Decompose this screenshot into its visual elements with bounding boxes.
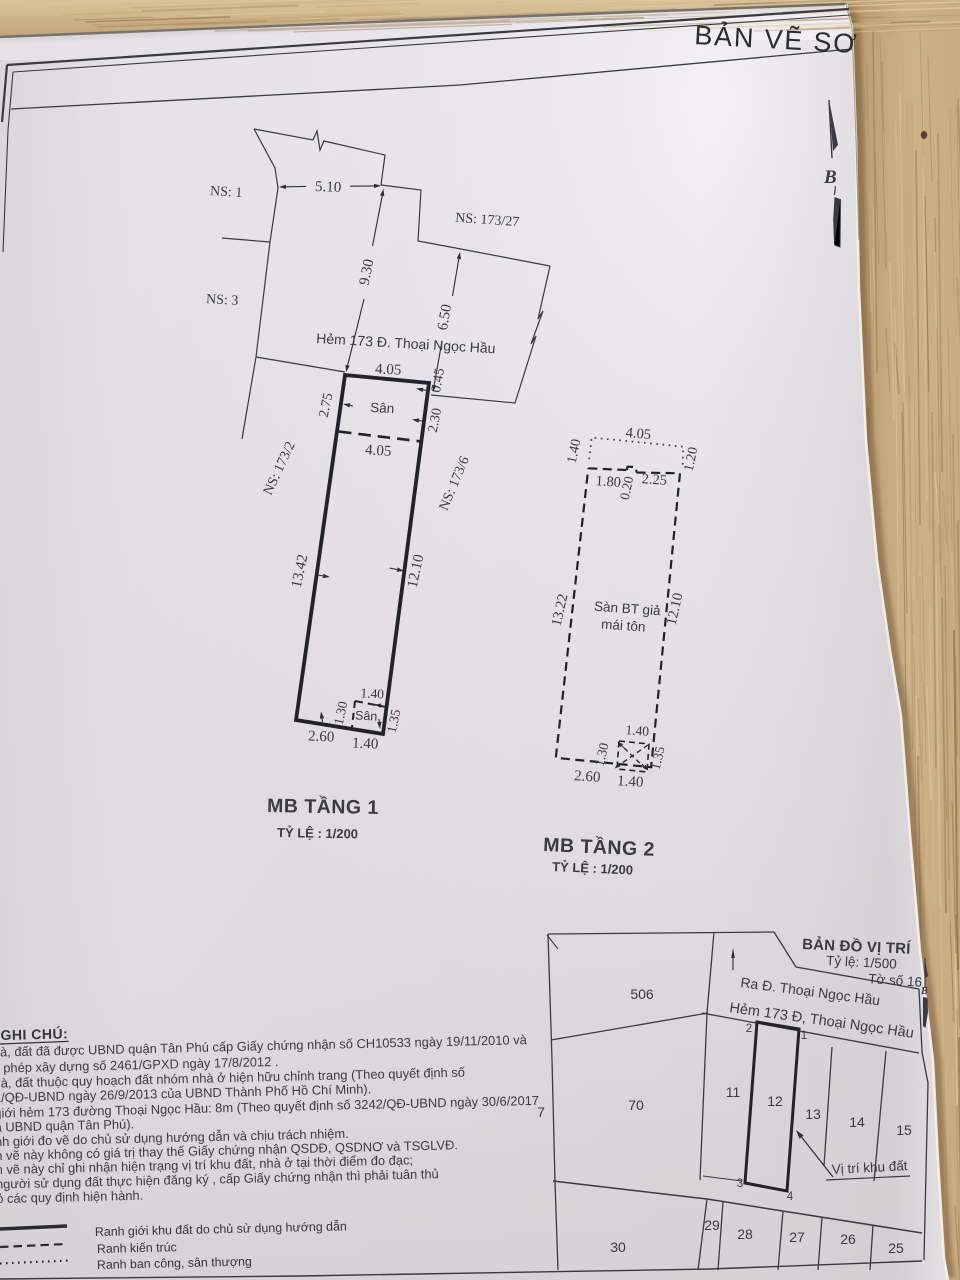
svg-text:4.05: 4.05 <box>625 425 652 443</box>
svg-text:11: 11 <box>726 1084 741 1100</box>
svg-text:1.80: 1.80 <box>595 473 621 491</box>
svg-text:5.10: 5.10 <box>315 179 342 196</box>
svg-text:B: B <box>823 167 837 188</box>
svg-text:30: 30 <box>610 1239 626 1255</box>
svg-text:2.25: 2.25 <box>641 471 667 489</box>
svg-text:4: 4 <box>787 1191 794 1203</box>
svg-text:4.05: 4.05 <box>375 361 402 378</box>
svg-text:1.40: 1.40 <box>352 735 379 752</box>
svg-text:506: 506 <box>630 986 654 1002</box>
svg-text:NS: 1: NS: 1 <box>210 184 243 201</box>
svg-text:15: 15 <box>896 1122 912 1138</box>
svg-text:13: 13 <box>805 1106 821 1122</box>
svg-text:26: 26 <box>840 1231 856 1247</box>
svg-text:28: 28 <box>737 1226 753 1242</box>
svg-text:MB TẦNG 2: MB TẦNG 2 <box>543 833 656 861</box>
svg-text:2.60: 2.60 <box>574 768 601 786</box>
svg-text:1.40: 1.40 <box>617 773 644 791</box>
svg-text:27: 27 <box>789 1229 805 1245</box>
svg-text:Sân: Sân <box>370 400 395 416</box>
svg-text:NS: 3: NS: 3 <box>206 292 239 309</box>
svg-text:MB TẦNG 1: MB TẦNG 1 <box>267 794 379 819</box>
svg-text:1.40: 1.40 <box>360 685 385 701</box>
svg-text:B: B <box>920 986 928 997</box>
svg-text:29: 29 <box>704 1217 720 1233</box>
svg-text:25: 25 <box>888 1240 904 1256</box>
svg-text:Sân: Sân <box>355 708 378 723</box>
svg-text:GHI CHÚ:: GHI CHÚ: <box>0 1024 68 1043</box>
svg-text:70: 70 <box>628 1097 644 1113</box>
svg-text:2.60: 2.60 <box>308 728 335 745</box>
svg-text:mái tôn: mái tôn <box>601 616 646 634</box>
svg-text:1.40: 1.40 <box>625 722 650 739</box>
svg-text:4.05: 4.05 <box>365 442 392 460</box>
svg-text:1: 1 <box>801 1030 807 1042</box>
svg-text:TỶ LỆ : 1/200: TỶ LỆ : 1/200 <box>277 825 358 841</box>
svg-text:14: 14 <box>849 1114 865 1130</box>
svg-text:12: 12 <box>767 1093 783 1109</box>
svg-text:2: 2 <box>746 1023 752 1035</box>
svg-text:Ranh kiến trúc: Ranh kiến trúc <box>97 1240 177 1256</box>
svg-text:3: 3 <box>737 1178 743 1190</box>
